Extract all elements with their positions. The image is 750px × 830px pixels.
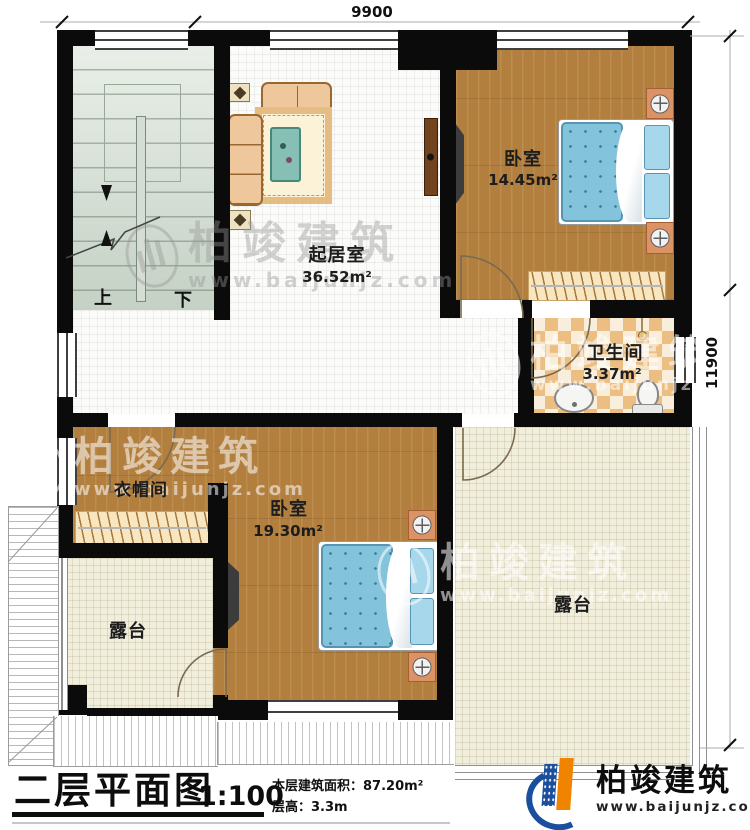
nightstand-lamp-symbol [646, 222, 674, 254]
dimension-top: 9900 [351, 3, 393, 21]
room-area-living: 36.52m² [302, 269, 372, 286]
title-underline [12, 812, 264, 817]
wall-tv-symbol [455, 123, 464, 205]
floor-plan-canvas: 柏竣建筑 www.baijunjz.com 柏竣建筑 www.baijunjz.… [0, 0, 750, 830]
stair-handrail [136, 116, 146, 302]
room-label-cloakroom: 衣帽间 [114, 482, 168, 501]
room-label-terrace1: 露台 [109, 622, 147, 642]
plan-area-line: 本层建筑面积：87.20m² [272, 777, 423, 798]
room-label-bedroom1: 卧室 [504, 150, 542, 170]
lower-roof-hatch [8, 506, 59, 766]
wall-segment [213, 700, 268, 720]
sink-drain-symbol [572, 402, 577, 407]
room-label-terrace2: 露台 [554, 596, 592, 616]
page-title: 二层平面图 [14, 772, 214, 809]
wall-segment [518, 318, 534, 427]
pillow-symbol [644, 173, 670, 219]
wall-segment [208, 483, 228, 558]
terrace2-railing-right [692, 427, 707, 778]
pillow-symbol [410, 548, 434, 594]
nightstand-lamp-symbol [646, 88, 674, 119]
pillow-symbol [644, 125, 670, 170]
room-label-bedroom2: 卧室 [270, 500, 308, 520]
window-symbol [57, 438, 77, 505]
pillow-symbol [410, 598, 434, 645]
hallway-floor-east [440, 318, 518, 414]
lower-roof-hatch [53, 716, 218, 767]
ceiling-light-symbol [638, 331, 647, 340]
wall-segment [514, 413, 692, 427]
coffee-table-symbol [270, 127, 301, 182]
dimension-right: 11900 [703, 337, 721, 389]
window-symbol [497, 30, 628, 50]
plan-floor-height-line: 层高：3.3m [272, 798, 423, 819]
brand-name: 柏竣建筑 [596, 766, 750, 797]
wall-segment [398, 30, 497, 70]
window-symbol [268, 700, 398, 724]
wall-segment [57, 543, 213, 558]
window-symbol [57, 333, 77, 397]
hallway-floor [73, 310, 230, 414]
wall-segment [213, 558, 228, 648]
nightstand-lamp-symbol [408, 510, 436, 540]
room-area-bedroom2: 19.30m² [253, 523, 323, 540]
side-table-lamp-symbol [229, 83, 250, 102]
room-area-bathroom: 3.37m² [582, 366, 641, 383]
stair-down-label: 下 [174, 286, 192, 312]
wall-segment [590, 300, 692, 318]
title-underline-thin [12, 822, 450, 824]
tv-cabinet-symbol [424, 118, 438, 196]
room-label-living: 起居室 [309, 246, 366, 266]
wall-segment [175, 413, 462, 427]
window-symbol [270, 30, 398, 50]
room-label-bathroom: 卫生间 [587, 344, 644, 364]
sofa-three-seat-symbol [228, 114, 263, 206]
window-symbol [95, 30, 188, 50]
nightstand-lamp-symbol [408, 652, 436, 682]
side-table-lamp-symbol [229, 210, 251, 230]
plan-info: 本层建筑面积：87.20m² 层高：3.3m [272, 777, 423, 819]
bed-sheet-symbol [616, 122, 642, 222]
bed-mattress-symbol [561, 122, 623, 222]
wall-segment [440, 70, 456, 318]
bed-mattress-symbol [321, 544, 393, 648]
wall-segment [73, 413, 108, 427]
cloakroom-rack-symbol [75, 511, 209, 545]
room-area-bedroom1: 14.45m² [488, 172, 558, 189]
wardrobe-symbol [528, 271, 666, 301]
wall-segment [437, 427, 453, 720]
brand-url: www.baijunjz.com [596, 801, 750, 815]
brand-logo-icon [526, 756, 588, 824]
brand-logo: 柏竣建筑 www.baijunjz.com [526, 756, 750, 824]
wall-tv-symbol [228, 562, 239, 630]
wall-segment [57, 30, 73, 333]
wall-segment [440, 300, 460, 318]
window-symbol [674, 337, 696, 383]
wall-segment [674, 30, 692, 337]
wall-segment [57, 397, 73, 438]
bed-sheet-symbol [386, 544, 412, 648]
wall-segment [214, 30, 230, 320]
sink-symbol [554, 383, 594, 413]
stair-up-label: 上 [94, 284, 112, 310]
wall-segment [522, 300, 532, 318]
lower-roof-hatch [217, 722, 454, 765]
